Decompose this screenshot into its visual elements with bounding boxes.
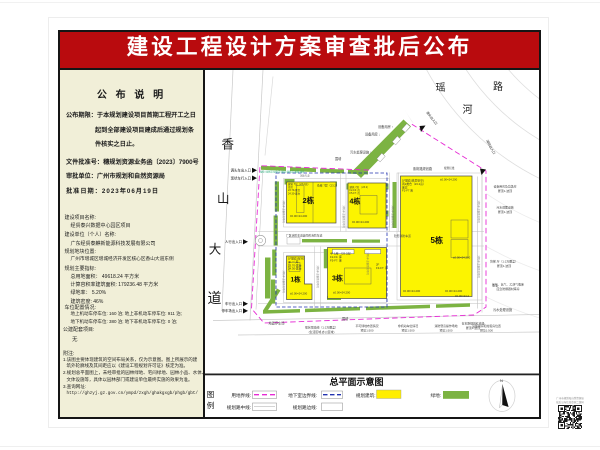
svg-text:24.30-露台: 24.30-露台 [288,191,301,195]
svg-text:设备用房及垃圾房: 设备用房及垃圾房 [493,183,516,188]
svg-text:消防车道: 消防车道 [300,173,310,177]
svg-text:隐形消防车道: 隐形消防车道 [394,234,411,238]
svg-text:广州市规划和自然资源局: 广州市规划和自然资源局 [556,396,584,400]
svg-text:山: 山 [217,191,230,205]
svg-text:围墙: 围墙 [335,156,342,161]
svg-text:批后公布信息查询二维码: 批后公布信息查询二维码 [556,400,584,404]
svg-text:围墙: 围墙 [342,316,349,321]
svg-text:停车场出入口: 停车场出入口 [222,308,242,313]
svg-text:±0.00=24.200: ±0.00=24.200 [453,255,471,259]
svg-text:氧气、氮气、乙炔气瓶库: 氧气、氮气、乙炔气瓶库 [492,281,524,286]
svg-text:绿地:: 绿地: [431,392,441,398]
svg-text:紫荆路规划路: 紫荆路规划路 [413,166,433,171]
svg-text:总平面示意图: 总平面示意图 [330,376,384,387]
svg-text:平可绿地布置情况: 平可绿地布置情况 [355,323,378,328]
svg-text:设备用房和垃圾房位置: 设备用房和垃圾房位置 [472,323,501,328]
svg-text:2栋: 2栋 [303,195,315,205]
svg-text:规划路中线:: 规划路中线: [227,404,251,411]
svg-text:±0.00=24.200: ±0.00=24.200 [440,177,458,181]
svg-text:仓库 7层（23.2）: 仓库 7层（23.2） [317,183,339,187]
svg-text:消防车道兼登高场地: 消防车道兼登高场地 [342,205,346,228]
svg-text:消防出入口: 消防出入口 [485,138,497,154]
svg-text:±0.00=24.200: ±0.00=24.200 [290,214,308,218]
svg-text:消防车道兼登高场地: 消防车道兼登高场地 [477,255,481,278]
svg-text:±0.00=24.200: ±0.00=24.200 [333,290,351,294]
svg-text:±0.00=24.200: ±0.00=24.200 [445,289,463,293]
svg-text:污水调蓄设施: 污水调蓄设施 [496,204,513,209]
svg-text:F2-F7 库: F2-F7 库 [402,188,413,192]
svg-text:屋顶1-波顶: 屋顶1-波顶 [498,188,512,193]
svg-text:香: 香 [222,137,235,151]
svg-text:±0.00=24.200: ±0.00=24.200 [403,289,421,293]
svg-text:大: 大 [209,242,222,256]
svg-text:现状围墙线（1:2万覆盖）: 现状围墙线（1:2万覆盖） [305,324,338,329]
svg-text:屋顶1-波顶: 屋顶1-波顶 [497,263,511,268]
svg-text:厂区消防车道兼隐形消防车道: 厂区消防车道兼隐形消防车道 [286,233,323,237]
svg-text:消防车道兼登高场地: 消防车道兼登高场地 [477,200,481,223]
svg-text:N: N [500,378,503,383]
svg-text:绿化 绿化带 绿化带 围墙 绿化带 围墙 绿化: 绿化 绿化带 绿化带 围墙 绿化带 围墙 绿化 [260,169,305,173]
svg-text:现状车行入口: 现状车行入口 [231,175,251,180]
svg-text:±0.00=24.200: ±0.00=24.200 [290,291,308,295]
svg-text:24.30-露台: 24.30-露台 [288,266,302,270]
svg-text:4栋: 4栋 [350,196,361,205]
svg-text:调头出入口: 调头出入口 [425,110,439,126]
svg-text:非机动车位情况: 非机动车位情况 [398,323,418,328]
svg-text:路: 路 [493,80,503,93]
svg-text:5栋: 5栋 [431,235,443,245]
svg-text:货梯 厅（1:2万覆盖）: 货梯 厅（1:2万覆盖） [490,258,518,263]
svg-text:预览1:500: 预览1:500 [480,327,493,332]
svg-text:规划红线: 规划红线 [444,166,455,170]
svg-text:地下室边界线:: 地下室边界线: [288,392,317,399]
svg-text:河: 河 [463,104,473,116]
svg-text:±0.00=24.200: ±0.00=24.200 [352,220,370,224]
svg-text:F5-F7: 库: F5-F7: 库 [330,258,342,262]
svg-text:消防车道兼登高场地: 消防车道兼登高场地 [366,252,370,275]
svg-text:(生活区域,办公区域): (生活区域,办公区域) [309,329,335,334]
svg-text:消防登高操作场地: 消防登高操作场地 [434,323,457,328]
svg-text:屋顶1-波顶: 屋顶1-波顶 [498,209,512,214]
svg-text:消防车道兼登高场地: 消防车道兼登高场地 [282,270,286,293]
svg-text:用地界线:: 用地界线: [231,392,251,399]
svg-text:消防车道兼登高场地: 消防车道兼登高场地 [391,205,395,228]
svg-text:人行出入口: 人行出入口 [225,239,242,244]
svg-text:车行出入口: 车行出入口 [225,301,242,306]
svg-text:图: 图 [207,390,215,399]
svg-text:调头车出入口: 调头车出入口 [231,167,251,172]
svg-text:预览1:500: 预览1:500 [401,327,414,332]
svg-text:规划路边线:: 规划路边线: [293,404,317,411]
svg-text:设备用房 ↑: 设备用房 ↑ [378,124,394,129]
svg-text:3栋: 3栋 [332,273,343,282]
svg-text:F5-F7: 库: F5-F7: 库 [350,191,361,195]
svg-text:污水处理设施: 污水处理设施 [493,307,513,312]
svg-text:±0.00=24.2: ±0.00=24.2 [455,294,469,298]
svg-text:规划建筑:: 规划建筑: [356,392,376,399]
svg-text:例: 例 [207,400,215,410]
svg-text:地面停车场: 地面停车场 [269,320,285,325]
svg-text:污水处理设施 ↑: 污水处理设施 ↑ [350,149,372,154]
svg-text:应急防爆器材库房: 应急防爆器材库房 [496,286,519,291]
svg-text:预览1:500: 预览1:500 [439,327,452,332]
svg-text:预览1:500: 预览1:500 [360,327,373,332]
svg-text:设备用房 ↓: 设备用房 ↓ [365,131,381,136]
svg-text:瑶: 瑶 [436,82,446,94]
svg-text:道: 道 [208,290,222,306]
svg-text:消防车道兼登高场地: 消防车道兼登高场地 [316,265,320,288]
svg-text:1栋: 1栋 [291,274,302,283]
svg-text:消防车道兼登高场地: 消防车道兼登高场地 [282,200,286,223]
svg-text:F3-F7: 库: F3-F7: 库 [376,265,388,269]
